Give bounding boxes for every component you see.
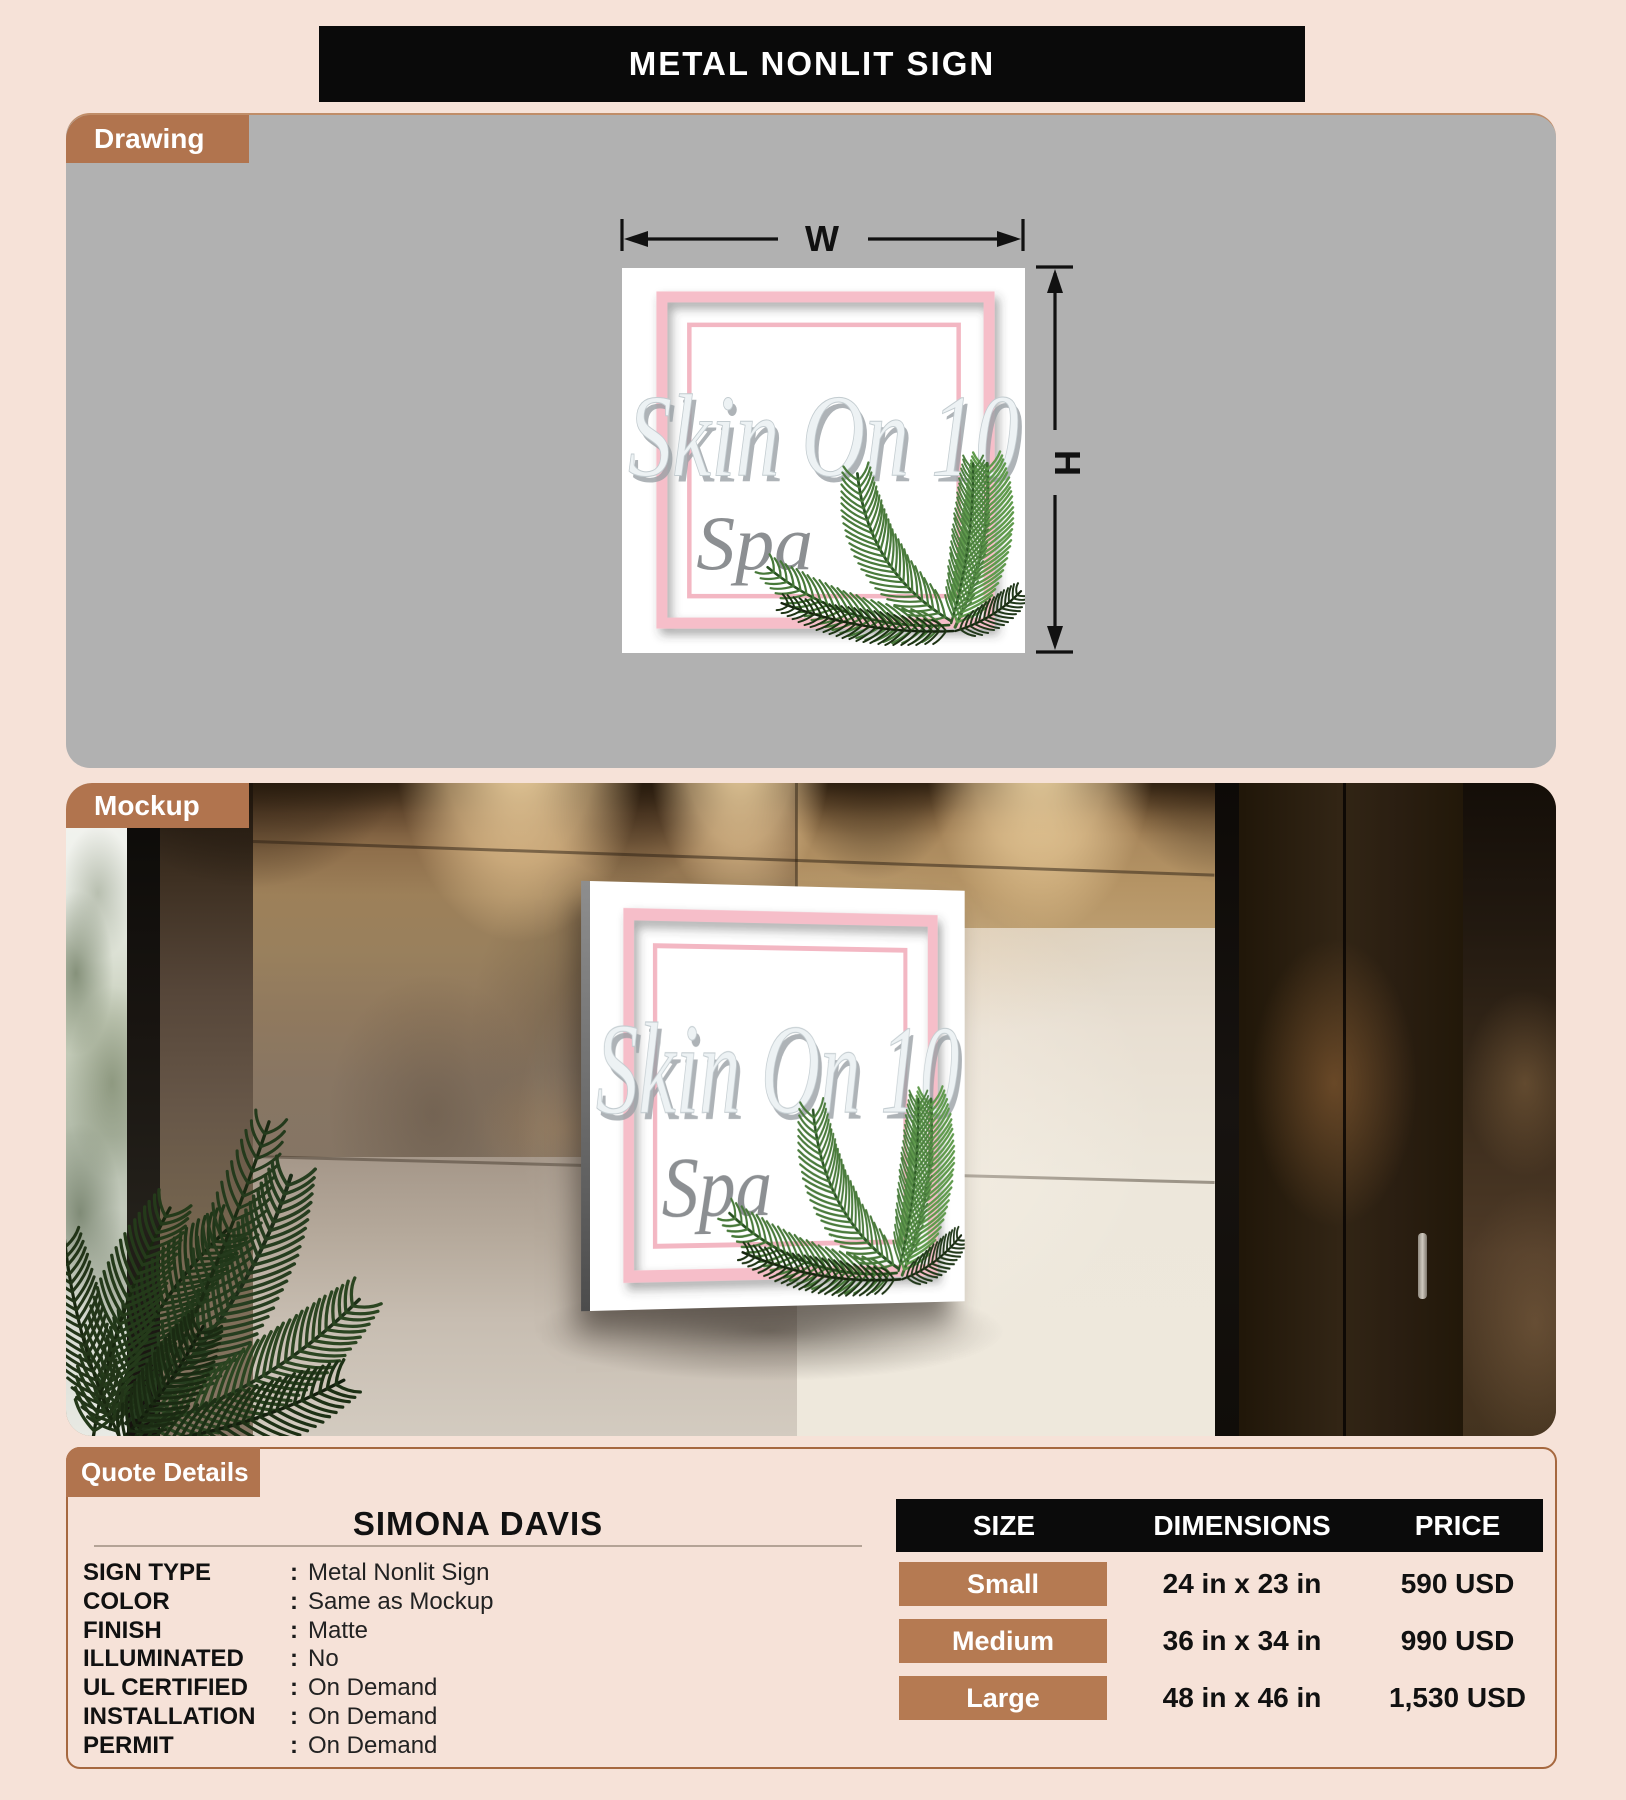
- svg-text:W: W: [805, 218, 839, 259]
- svg-text:H: H: [1047, 450, 1088, 476]
- svg-text:Skin On 10: Skin On 10: [596, 996, 960, 1142]
